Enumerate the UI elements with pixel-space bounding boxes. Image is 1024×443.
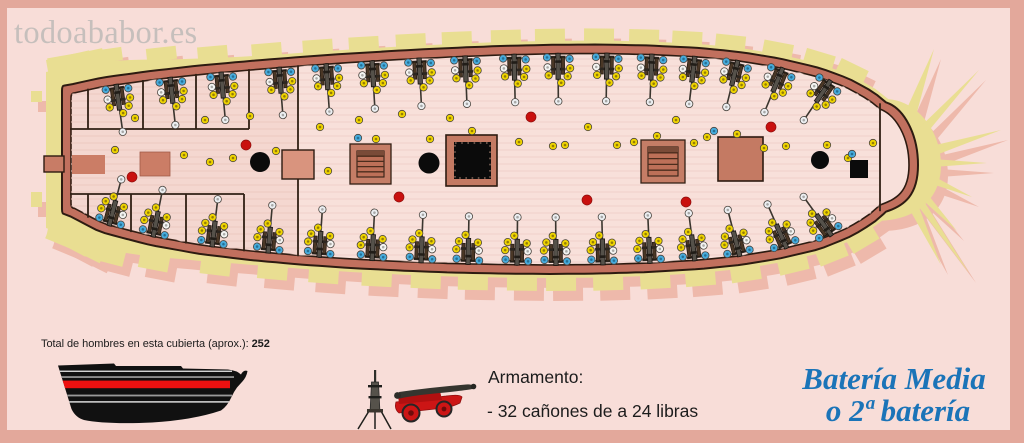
svg-text:o 2ª batería: o 2ª batería bbox=[826, 393, 970, 428]
svg-text:Total de hombres en esta cubie: Total de hombres en esta cubierta (aprox… bbox=[41, 338, 270, 350]
svg-text:Batería Media: Batería Media bbox=[801, 361, 985, 396]
svg-text:todoababor.es: todoababor.es bbox=[14, 15, 198, 51]
svg-text:Armamento:: Armamento: bbox=[488, 367, 583, 387]
svg-text:- 32 cañones de a 24 libras: - 32 cañones de a 24 libras bbox=[487, 401, 698, 421]
